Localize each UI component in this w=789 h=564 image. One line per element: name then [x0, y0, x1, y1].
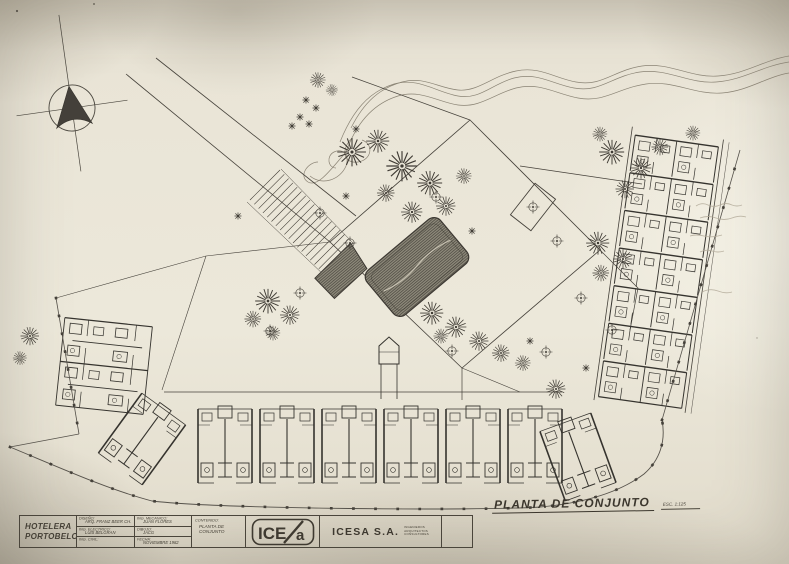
field-ing-civil: ING. CIVIL: [77, 536, 134, 547]
contenido-value: PLANTA DE CONJUNTO [199, 524, 242, 534]
field-dibujo: DIBUJO: JACG [135, 526, 191, 537]
kiddie-pool [312, 243, 371, 300]
company-sub-line: CONSULTORES [404, 532, 429, 536]
title-block-column-2: ING. MECANICO: JUAN FLORES DIBUJO: JACG … [134, 516, 191, 547]
field-ing-mecanico: ING. MECANICO: JUAN FLORES [135, 516, 191, 526]
empty-cell [441, 516, 474, 547]
site-plan-drawing [0, 0, 789, 564]
company-subtitle: INGENIEROS ARQUITECTOS CONSULTORES [404, 526, 429, 537]
field-fecha: FECHA: NOVIEMBRE 1982 [135, 536, 191, 547]
field-value: JUAN FLORES [143, 520, 189, 524]
field-ing-electrico: ING. ELECTRICO: LUIS BELGRAN [77, 526, 134, 537]
right-room-wing [594, 127, 729, 414]
field-value: LUIS BELGRAN [85, 531, 132, 535]
field-label: ING. ELECTRICO: [79, 527, 132, 531]
field-label: DISEÑO: [79, 517, 132, 521]
scanned-site-plan: HOTELERA PORTOBELO DISEÑO: ARQ. FRANZ BE… [0, 0, 789, 564]
icesa-logo-icon: ICE a [251, 518, 315, 546]
project-line1: HOTELERA [25, 522, 76, 531]
pencil-annotations [690, 204, 746, 293]
icesa-logo: ICE a [245, 516, 319, 547]
field-value: ARQ. FRANZ BEER CH. [85, 520, 132, 524]
contenido-cell: CONTENIDO: PLANTA DE CONJUNTO [191, 516, 245, 547]
site-boundary [10, 150, 740, 509]
project-line2: PORTOBELO [25, 532, 76, 541]
project-name: HOTELERA PORTOBELO [20, 516, 76, 547]
company-name: ICESA S.A. [332, 526, 399, 538]
courtyard-paths [56, 58, 642, 400]
sheet-scale: ESC. 1:125 [661, 501, 700, 510]
title-block: HOTELERA PORTOBELO DISEÑO: ARQ. FRANZ BE… [19, 515, 473, 548]
field-label: DIBUJO: [137, 527, 189, 531]
bottom-room-wing [98, 391, 616, 501]
field-label: ING. CIVIL: [79, 538, 132, 542]
field-value: JACG [143, 531, 189, 535]
field-diseno: DISEÑO: ARQ. FRANZ BEER CH. [77, 516, 134, 526]
sheet-title-text: PLANTA DE CONJUNTO [492, 495, 654, 514]
title-block-column-1: DISEÑO: ARQ. FRANZ BEER CH. ING. ELECTRI… [76, 516, 134, 547]
pool-house [379, 337, 399, 399]
field-value: NOVIEMBRE 1982 [143, 541, 189, 545]
trees [13, 72, 700, 398]
company-cell: ICESA S.A. INGENIEROS ARQUITECTOS CONSUL… [319, 516, 441, 547]
field-label: FECHA: [137, 538, 189, 542]
svg-text:a: a [296, 527, 305, 544]
field-label: ING. MECANICO: [137, 517, 189, 521]
swimming-pool [312, 214, 472, 320]
contenido-label: CONTENIDO: [195, 519, 242, 523]
svg-text:ICE: ICE [258, 524, 286, 543]
north-arrow-icon [3, 7, 136, 179]
